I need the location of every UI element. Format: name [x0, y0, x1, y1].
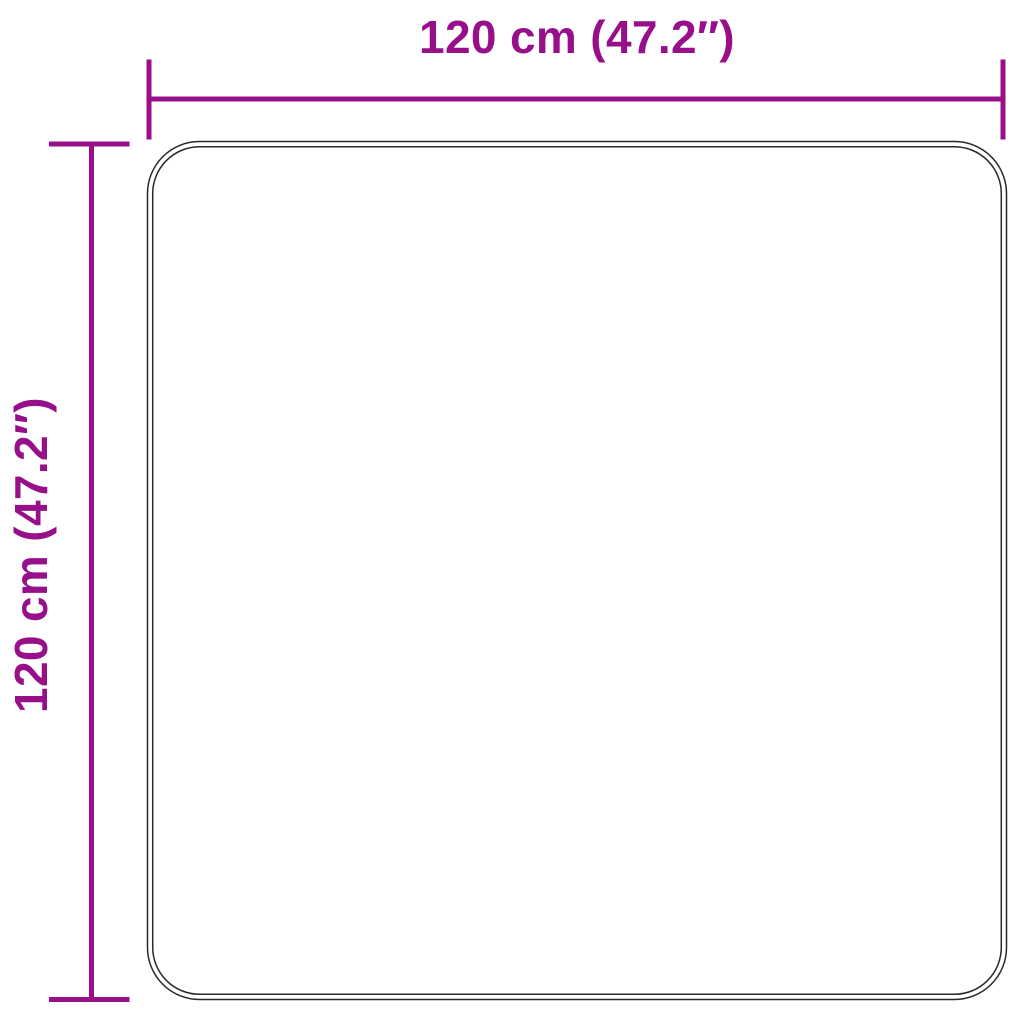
- svg-text:120 cm (47.2″): 120 cm (47.2″): [419, 11, 735, 63]
- svg-text:120 cm (47.2″): 120 cm (47.2″): [5, 397, 57, 713]
